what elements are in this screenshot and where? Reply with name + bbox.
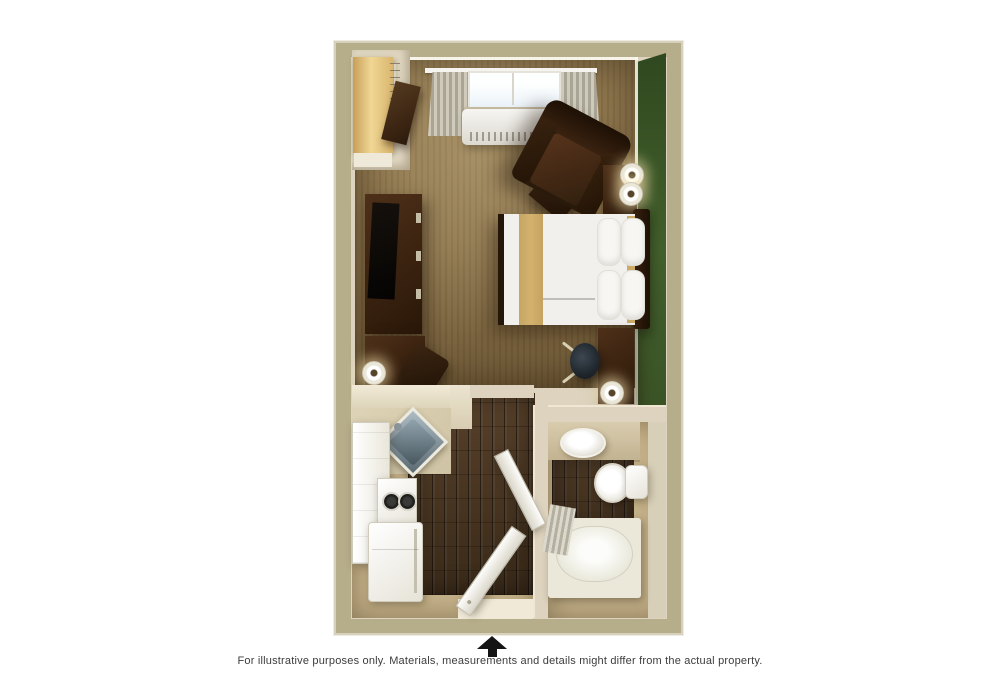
refrigerator [368,522,423,602]
tv-screen [368,202,400,299]
floor-plan [336,43,681,633]
bathroom-top-wall [533,405,666,423]
pillow [597,218,621,266]
arrow-head [477,636,507,649]
door-knob [466,599,472,605]
bathroom-right-wall [648,422,666,618]
bed [498,214,635,325]
desk-lamp [600,381,624,405]
sink-faucet [394,423,402,431]
pillow [621,270,645,320]
office-chair [570,343,600,379]
kitchen-bar-return [450,385,472,429]
bathroom-vanity [548,422,640,462]
pillow [621,218,645,266]
drawer-handle [416,289,421,299]
baseboard-top [406,57,638,60]
bed-footboard [498,214,504,325]
pillow [597,270,621,320]
stove [377,478,417,528]
refrigerator-handle [414,529,417,593]
refrigerator-door-seam [372,549,419,550]
closet-shelf [354,153,392,167]
bed-accent-runner [519,214,543,325]
vanity-sink [560,428,606,458]
window-mullion [512,73,514,105]
disclaimer-caption: For illustrative purposes only. Material… [0,655,1000,667]
drawer-handle [416,251,421,261]
tv-stand [365,194,422,334]
drawer-handle [416,213,421,223]
duvet-fold [543,298,595,300]
table-lamp [362,361,386,385]
stove-burner [398,492,417,511]
nightstand-lamp [619,182,643,206]
toilet-tank [625,465,648,499]
hall-wall-band [470,385,534,398]
